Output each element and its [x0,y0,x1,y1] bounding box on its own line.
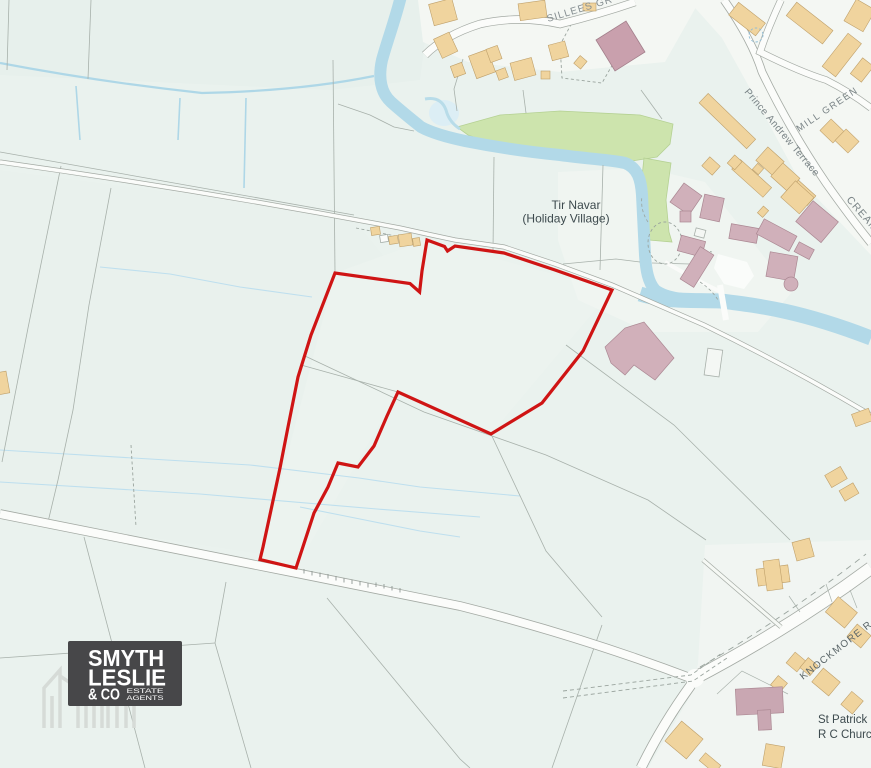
svg-text:(Holiday Village): (Holiday Village) [522,212,609,226]
svg-text:& CO: & CO [88,687,120,704]
svg-text:AGENTS: AGENTS [127,695,165,702]
svg-text:Tir Navar: Tir Navar [552,198,601,212]
svg-text:St Patrick: St Patrick [818,714,867,726]
svg-text:R C Churc: R C Churc [818,729,871,741]
svg-text:ESTATE: ESTATE [127,688,165,695]
